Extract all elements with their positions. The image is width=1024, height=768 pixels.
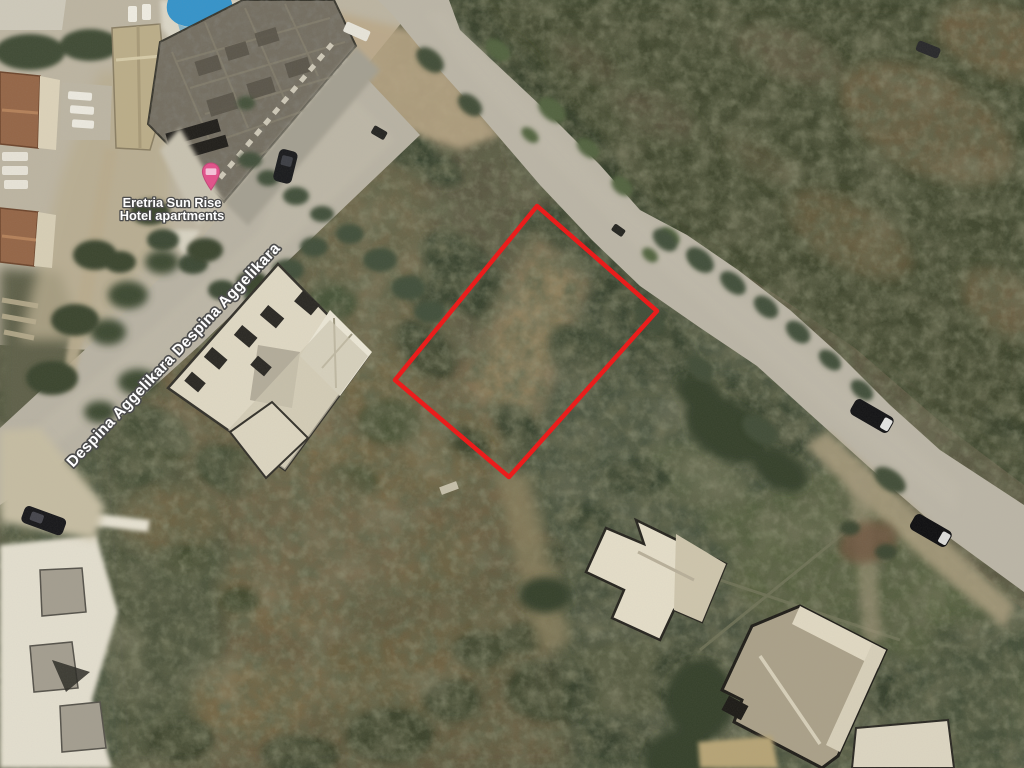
svg-text:Hotel apartments: Hotel apartments	[120, 208, 225, 223]
